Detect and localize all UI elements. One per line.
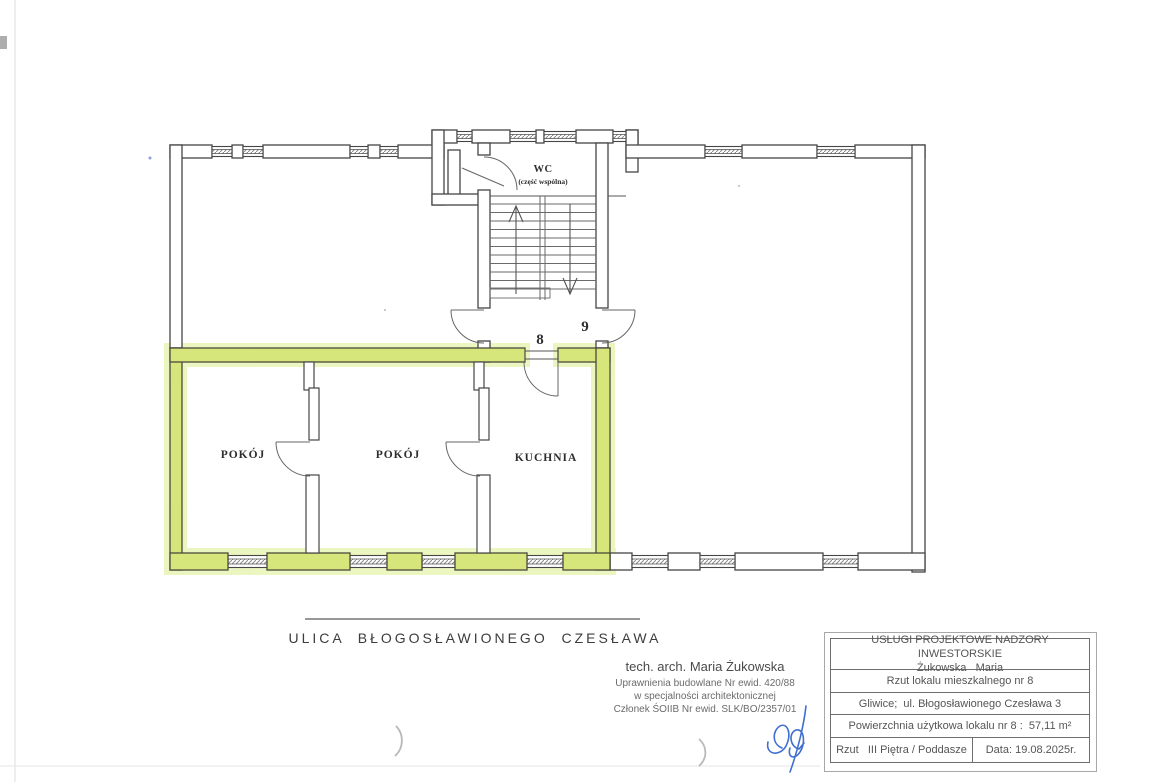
floor-date-row: Rzut III Piętra / Poddasze Data: 19.08.2… xyxy=(831,738,1089,762)
title-block-company-row: USŁUGI PROJEKTOWE NADZORY INWESTORSKIE Ż… xyxy=(831,639,1089,670)
staircase xyxy=(490,196,596,300)
architect-license: Uprawnienia budowlane Nr ewid. 420/88 xyxy=(585,677,825,690)
title-block-table: USŁUGI PROJEKTOWE NADZORY INWESTORSKIE Ż… xyxy=(830,638,1090,763)
unit-number-9: 9 xyxy=(581,319,589,335)
scanned-floor-plan-page: WC (część wspólna) POKÓJ POKÓJ KUCHNIA 8… xyxy=(0,0,1152,782)
room-label-kuchnia: KUCHNIA xyxy=(515,452,578,464)
drawing-title: Rzut lokalu mieszkalnego nr 8 xyxy=(831,675,1089,687)
wc-label: WC xyxy=(533,164,552,175)
page-curl-mark-left xyxy=(395,726,402,756)
street-label: ULICA BŁOGOSŁAWIONEGO CZESŁAWA xyxy=(250,630,700,646)
plan-labels: WC (część wspólna) POKÓJ POKÓJ KUCHNIA 8… xyxy=(221,164,589,464)
company-owner: Żukowska Maria xyxy=(831,661,1089,675)
company-name: USŁUGI PROJEKTOWE NADZORY INWESTORSKIE xyxy=(831,633,1089,661)
room-label-pokoj-1: POKÓJ xyxy=(221,447,266,461)
room-door-arc-1 xyxy=(276,442,310,476)
title-block: USŁUGI PROJEKTOWE NADZORY INWESTORSKIE Ż… xyxy=(824,632,1097,772)
landing-left-door-arc xyxy=(451,310,484,343)
wc-door-arc xyxy=(484,157,517,190)
architect-specialty: w specjalności architektonicznej xyxy=(585,690,825,703)
architect-stamp: tech. arch. Maria Żukowska Uprawnienia b… xyxy=(585,659,825,716)
unit-number-8: 8 xyxy=(536,332,544,348)
floor-label: Rzut III Piętra / Poddasze xyxy=(831,738,973,762)
usable-area: Powierzchnia użytkowa lokalu nr 8 : 57,1… xyxy=(831,720,1089,732)
architect-membership: Członek ŚOIIB Nr ewid. SLK/BO/2357/01 xyxy=(585,703,825,716)
room-label-pokoj-2: POKÓJ xyxy=(376,447,421,461)
page-curl-mark-right xyxy=(699,739,705,766)
room-door-arc-2 xyxy=(446,442,480,476)
architect-name: tech. arch. Maria Żukowska xyxy=(585,659,825,674)
date-label: Data: 19.08.2025r. xyxy=(973,738,1089,762)
unit-9-door-arc xyxy=(602,310,635,343)
unit-8-entrance-arc xyxy=(524,362,558,396)
address: Gliwice; ul. Błogosławionego Czesława 3 xyxy=(831,698,1089,710)
wc-sublabel: (część wspólna) xyxy=(518,177,568,186)
area-row: Powierzchnia użytkowa lokalu nr 8 : 57,1… xyxy=(831,715,1089,738)
address-row: Gliwice; ul. Błogosławionego Czesława 3 xyxy=(831,693,1089,715)
